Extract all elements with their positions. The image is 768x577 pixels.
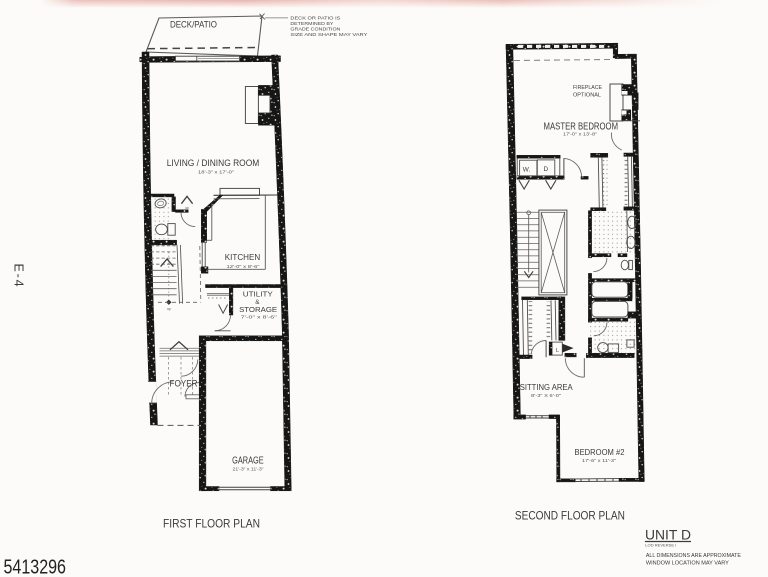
svg-text:SIZE AND SHAPE MAY VARY: SIZE AND SHAPE MAY VARY (290, 32, 367, 37)
svg-text:7'-0" x 8'-6": 7'-0" x 8'-6" (241, 314, 278, 319)
svg-text:SECOND FLOOR PLAN: SECOND FLOOR PLAN (515, 510, 625, 522)
svg-text:8'-3" X 6'-0": 8'-3" X 6'-0" (531, 393, 562, 398)
svg-text:up: up (167, 307, 171, 311)
svg-text:BEDROOM #2: BEDROOM #2 (575, 447, 625, 457)
svg-text:SITTING AREA: SITTING AREA (520, 383, 574, 392)
svg-text:W.: W. (523, 167, 531, 174)
svg-text:up: up (185, 206, 189, 210)
svg-text:ALL DIMENSIONS ARE APPROXIMATE: ALL DIMENSIONS ARE APPROXIMATE (646, 553, 741, 559)
svg-text:FOYER: FOYER (170, 379, 198, 389)
svg-text:WINDOW LOCATION MAY VARY: WINDOW LOCATION MAY VARY (646, 561, 729, 567)
svg-text:GARAGE: GARAGE (232, 456, 264, 467)
svg-text:DECK/PATIO: DECK/PATIO (170, 20, 217, 30)
svg-text:D: D (543, 166, 548, 173)
svg-text:FIREPLACE: FIREPLACE (573, 85, 603, 91)
svg-text:17'-6" x 11'-3": 17'-6" x 11'-3" (582, 458, 617, 463)
svg-text:OPTIONAL: OPTIONAL (573, 92, 601, 98)
svg-text:L: L (556, 348, 559, 354)
svg-text:DETERMINED BY: DETERMINED BY (290, 21, 333, 26)
svg-text:STORAGE: STORAGE (239, 307, 277, 314)
svg-text:GRADE CONDITION: GRADE CONDITION (290, 26, 340, 31)
svg-text:FIRST FLOOR PLAN: FIRST FLOOR PLAN (163, 518, 260, 530)
svg-text:21'-3" x 11'-3": 21'-3" x 11'-3" (233, 467, 265, 472)
svg-text:E-4: E-4 (12, 264, 26, 289)
svg-text:5413296: 5413296 (4, 557, 67, 577)
svg-text:LOD REVERSE I: LOD REVERSE I (645, 544, 676, 548)
svg-text:LIVING / DINING ROOM: LIVING / DINING ROOM (167, 158, 260, 169)
svg-text:12'-0" x 8'-6": 12'-0" x 8'-6" (227, 264, 261, 269)
svg-text:KITCHEN: KITCHEN (225, 252, 261, 262)
svg-text:DECK OR PATIO IS: DECK OR PATIO IS (290, 15, 340, 20)
svg-text:UNIT D: UNIT D (645, 527, 691, 543)
svg-text:UTILITY: UTILITY (243, 292, 273, 299)
svg-text:18'-3" x 17'-0": 18'-3" x 17'-0" (198, 170, 234, 176)
svg-text:&: & (255, 299, 260, 306)
svg-text:17'-0" x 13'-8": 17'-0" x 13'-8" (563, 132, 598, 137)
